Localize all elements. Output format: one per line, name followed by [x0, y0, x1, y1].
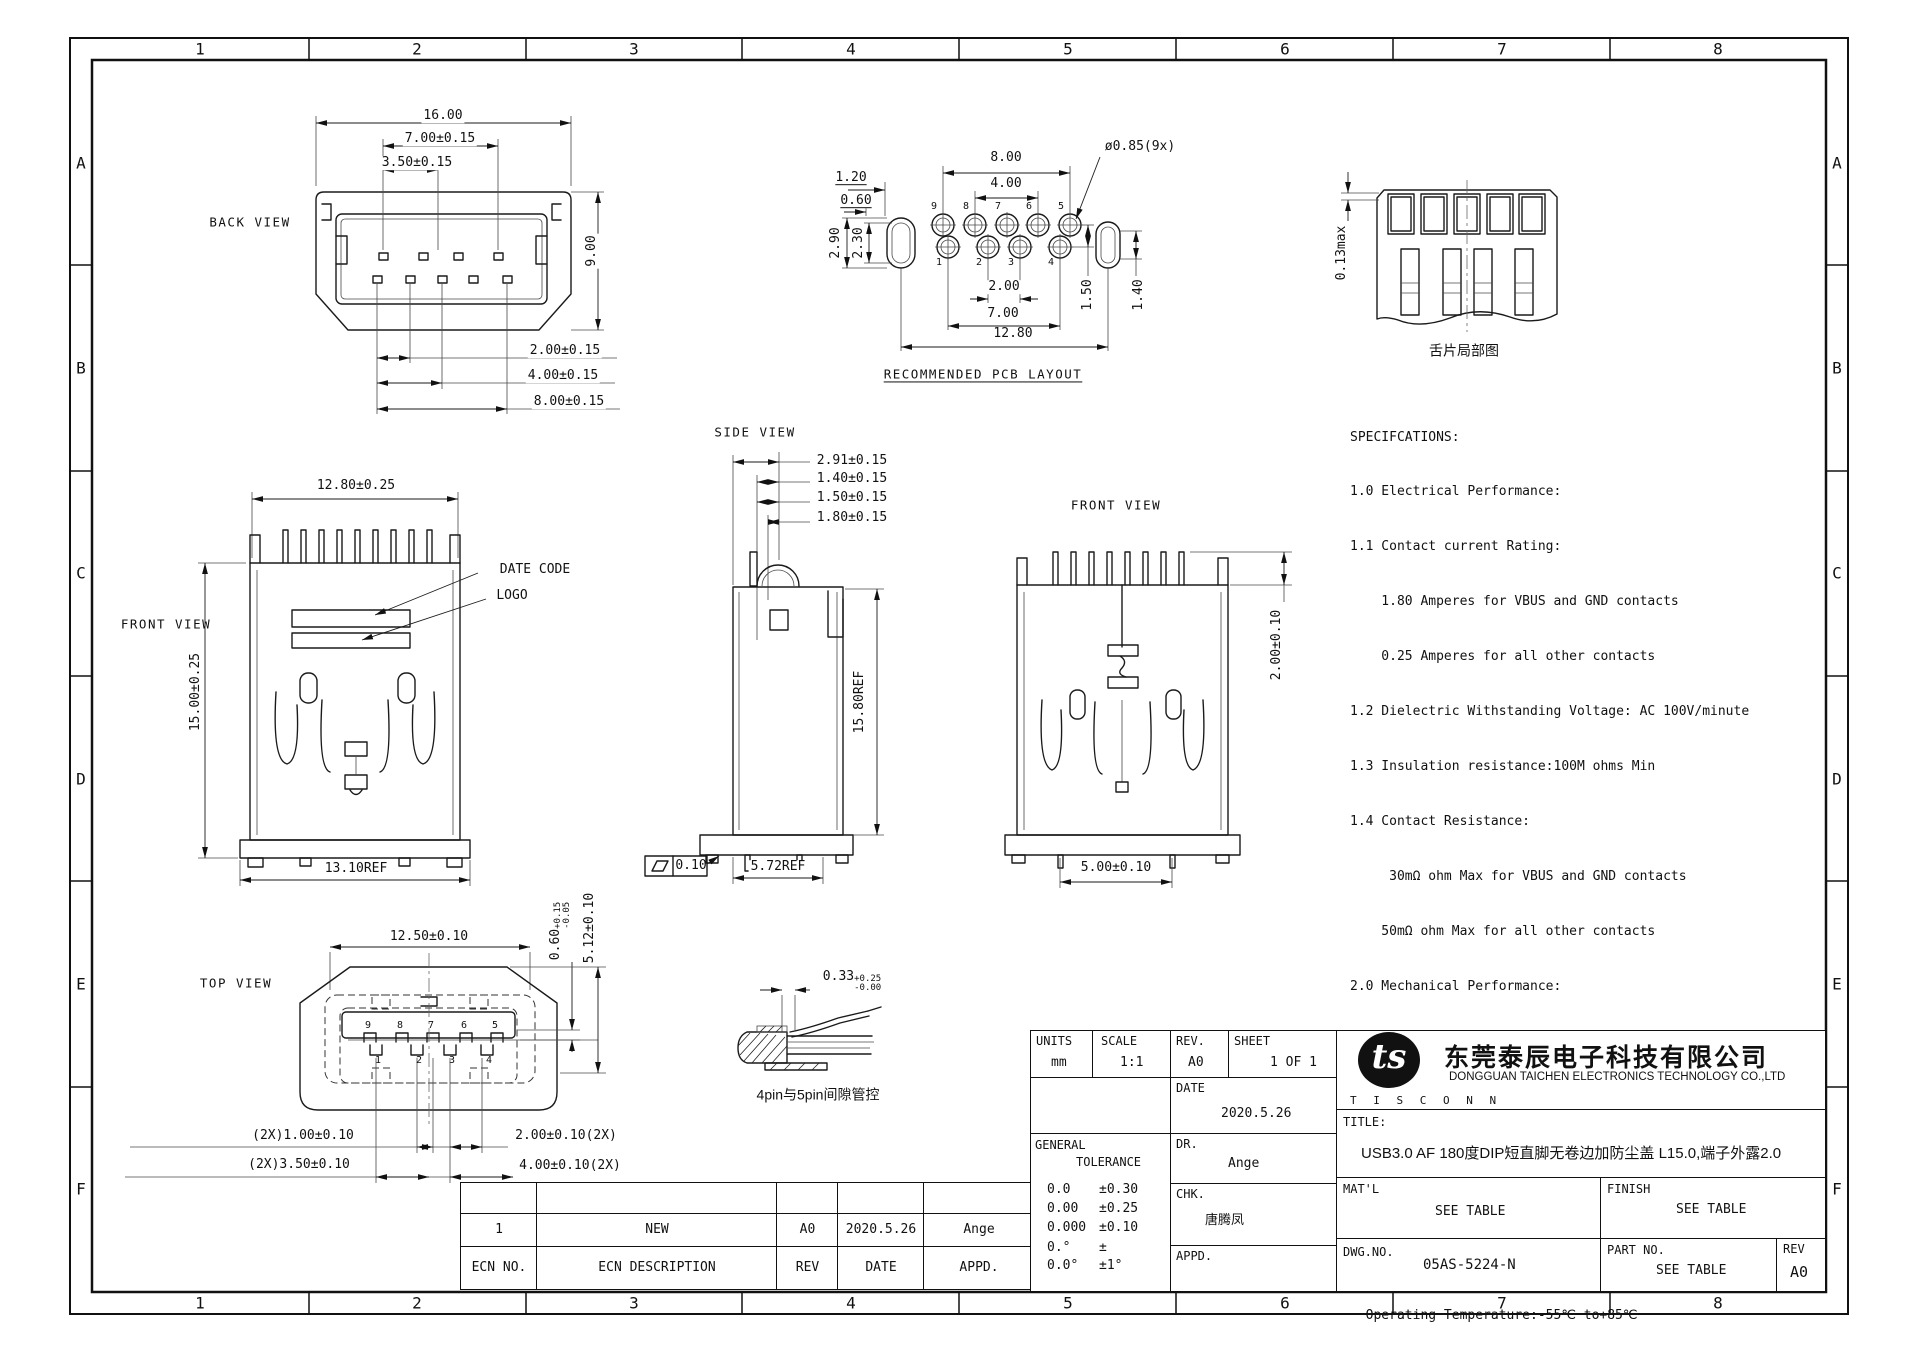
spec-line: Operating Temperature:-55℃ to+85℃	[1350, 1307, 1749, 1325]
dim: 2.00±0.15	[528, 344, 602, 358]
front-view-left-linework	[198, 492, 486, 886]
dim: 2.00±0.10	[1270, 608, 1284, 682]
zone-col: 6	[1280, 1294, 1290, 1313]
annotation: LOGO	[494, 589, 529, 603]
tb-title: TITLE: USB3.0 AF 180度DIP短直脚无卷边加防尘盖 L15.0…	[1336, 1109, 1826, 1179]
drawing-title: USB3.0 AF 180度DIP短直脚无卷边加防尘盖 L15.0,端子外露2.…	[1361, 1142, 1781, 1163]
zone-row: C	[1832, 564, 1842, 583]
front-view-right-linework	[1005, 552, 1292, 888]
tongue-detail-linework	[1341, 172, 1557, 332]
pin-number: 9	[931, 202, 937, 213]
dim: 5.00±0.10	[1079, 861, 1153, 875]
dim: 16.00	[421, 109, 464, 123]
tb-rev: REV. A0	[1170, 1030, 1230, 1079]
dim: ø0.85(9x)	[1103, 140, 1177, 154]
view-title: 舌片局部图	[1427, 344, 1501, 359]
dim: 0.33+0.25-0.00	[821, 970, 883, 992]
pin-number: 8	[397, 1021, 403, 1032]
company-name-cn: 东莞泰辰电子科技有限公司	[1444, 1038, 1768, 1074]
dim-sub: -0.05	[563, 902, 572, 929]
view-title: 4pin与5pin间隙管控	[755, 1088, 882, 1103]
zone-col: 4	[846, 40, 856, 59]
ecn-header-rev: REV	[776, 1246, 839, 1290]
tb-matl: MAT'L SEE TABLE	[1336, 1177, 1602, 1240]
specs-title: SPECIFCATIONS:	[1350, 429, 1749, 447]
pin-number: 5	[1058, 202, 1064, 213]
spec-line: 1.4 Contact Resistance:	[1350, 813, 1749, 831]
ecn-empty-cell	[536, 1182, 778, 1214]
spec-line: 1.1 Contact current Rating:	[1350, 538, 1749, 556]
pin-number: 2	[416, 1056, 422, 1067]
zone-row: B	[1832, 359, 1842, 378]
dim: 15.00±0.25	[189, 651, 203, 733]
dim: 8.00±0.15	[532, 395, 606, 409]
dim-main: 0.60	[548, 929, 563, 960]
dim: 9.00	[585, 233, 599, 268]
dim: 5.12±0.10	[583, 891, 597, 965]
dim: 1.80±0.15	[815, 511, 889, 525]
ecn-empty-cell	[923, 1182, 1035, 1214]
zone-col: 5	[1063, 1294, 1073, 1313]
dim: 0.13max	[1335, 224, 1349, 283]
tb-projection	[1030, 1077, 1172, 1135]
ecn-row-date: 2020.5.26	[837, 1213, 925, 1248]
zone-row: A	[76, 154, 86, 173]
dim: 12.50±0.10	[388, 930, 470, 944]
dim: 4.00±0.10(2X)	[517, 1159, 623, 1173]
drawing-sheet: 1 2 3 4 5 6 7 8 1 2 3 4 5 6 7 8 A B C D …	[0, 0, 1920, 1356]
zone-row: B	[76, 359, 86, 378]
tb-appd: APPD.	[1170, 1245, 1338, 1292]
ecn-empty-cell	[837, 1182, 925, 1214]
tb-rev2: REV A0	[1776, 1238, 1826, 1292]
spec-line: 1.3 Insulation resistance:100M ohms Min	[1350, 758, 1749, 776]
pin-number: 4	[1048, 258, 1054, 269]
ecn-header-date: DATE	[837, 1246, 925, 1290]
tb-finish: FINISH SEE TABLE	[1600, 1177, 1826, 1240]
pin-number: 4	[486, 1056, 492, 1067]
pin-number: 7	[995, 202, 1001, 213]
zone-row: E	[1832, 975, 1842, 994]
dim: 5.72REF	[749, 860, 808, 874]
tb-sheet: SHEET 1 OF 1	[1228, 1030, 1338, 1079]
pin-number: 9	[365, 1021, 371, 1032]
tb-chk: CHK. 唐腾凤	[1170, 1183, 1338, 1247]
spec-line: 30mΩ ohm Max for VBUS and GND contacts	[1350, 868, 1749, 886]
dim: 0.60+0.15-0.05	[549, 900, 571, 962]
pin-number: 6	[1026, 202, 1032, 213]
dim: 1.50±0.15	[815, 491, 889, 505]
view-title: BACK VIEW	[207, 215, 292, 228]
ecn-empty-cell	[776, 1182, 839, 1214]
pin-number: 1	[375, 1056, 381, 1067]
spec-line: 1.80 Amperes for VBUS and GND contacts	[1350, 593, 1749, 611]
dim: 4.00±0.15	[526, 369, 600, 383]
brand-name: T I S C O N N	[1350, 1094, 1501, 1107]
zone-row: F	[76, 1180, 86, 1199]
pin-number: 1	[936, 258, 942, 269]
dim: 1.20	[833, 171, 868, 185]
dim: 8.00	[988, 151, 1023, 165]
tb-tolerance: GENERAL TOLERANCE 0.0 ±0.30 0.00 ±0.25 0…	[1030, 1133, 1172, 1292]
dim: 4.00	[988, 177, 1023, 191]
zone-row: C	[76, 564, 86, 583]
zone-col: 2	[412, 1294, 422, 1313]
spec-line: 0.25 Amperes for all other contacts	[1350, 648, 1749, 666]
zone-col: 2	[412, 40, 422, 59]
pin-number: 5	[492, 1021, 498, 1032]
spec-line: 2.0 Mechanical Performance:	[1350, 978, 1749, 996]
tb-dr: DR. Ange	[1170, 1133, 1338, 1185]
pin-number: 7	[428, 1021, 434, 1032]
view-title: FRONT VIEW	[1069, 498, 1163, 511]
ecn-row-appd: Ange	[923, 1213, 1035, 1248]
ecn-row-no: 1	[460, 1213, 538, 1248]
zone-col: 3	[629, 1294, 639, 1313]
dim: 12.80±0.25	[315, 479, 397, 493]
zone-col: 1	[195, 40, 205, 59]
gap-detail-linework	[738, 990, 881, 1070]
pin-number: 6	[461, 1021, 467, 1032]
dim: 7.00±0.15	[403, 132, 477, 146]
ecn-empty-cell	[460, 1182, 538, 1214]
dim: 1.40±0.15	[815, 472, 889, 486]
tb-units: UNITS mm	[1030, 1030, 1094, 1079]
ecn-header-appd: APPD.	[923, 1246, 1035, 1290]
spec-line: 50mΩ ohm Max for all other contacts	[1350, 923, 1749, 941]
pin-number: 2	[976, 258, 982, 269]
company-name-en: DONGGUAN TAICHEN ELECTRONICS TECHNOLOGY …	[1449, 1071, 1785, 1083]
zone-col: 6	[1280, 40, 1290, 59]
view-title: FRONT VIEW	[119, 617, 213, 630]
annotation: DATE CODE	[498, 563, 572, 577]
dim: 1.40	[1132, 277, 1146, 312]
spec-line: 1.2 Dielectric Withstanding Voltage: AC …	[1350, 703, 1749, 721]
dim-main: 0.33	[823, 969, 854, 984]
drawing-number: 05AS-5224-N	[1423, 1257, 1516, 1273]
dim: 2.90	[829, 225, 843, 260]
pin-number: 3	[1008, 258, 1014, 269]
ecn-row-desc: NEW	[536, 1213, 778, 1248]
dim: 1.50	[1081, 277, 1095, 312]
dim: 2.30	[852, 225, 866, 260]
flatness-value: 0.10	[673, 859, 708, 873]
zone-col: 1	[195, 1294, 205, 1313]
view-title: SIDE VIEW	[712, 425, 797, 438]
tb-partno: PART NO. SEE TABLE	[1600, 1238, 1778, 1292]
tb-scale: SCALE 1:1	[1092, 1030, 1172, 1079]
zone-col: 5	[1063, 40, 1073, 59]
zone-col: 8	[1713, 40, 1723, 59]
zone-row: D	[76, 770, 86, 789]
dim: 2.00	[986, 280, 1021, 294]
dim: 13.10REF	[323, 862, 390, 876]
dim: 15.80REF	[853, 669, 867, 736]
dim: (2X)3.50±0.10	[246, 1158, 352, 1172]
pin-number: 8	[963, 202, 969, 213]
zone-col: 3	[629, 40, 639, 59]
dim: 2.00±0.10(2X)	[513, 1129, 619, 1143]
tb-dwgno: DWG.NO. 05AS-5224-N	[1336, 1238, 1602, 1292]
zone-row: F	[1832, 1180, 1842, 1199]
spec-line: 1.0 Electrical Performance:	[1350, 483, 1749, 501]
zone-row: D	[1832, 770, 1842, 789]
dim: (2X)1.00±0.10	[250, 1129, 356, 1143]
pin-number: 3	[449, 1056, 455, 1067]
view-title: TOP VIEW	[198, 976, 274, 989]
ecn-row-rev: A0	[776, 1213, 839, 1248]
tb-date: DATE 2020.5.26	[1170, 1077, 1338, 1135]
ecn-header-no: ECN NO.	[460, 1246, 538, 1290]
dim: 0.60	[838, 194, 873, 208]
dim: 3.50±0.15	[380, 156, 454, 170]
dim: 2.91±0.15	[815, 454, 889, 468]
zone-row: E	[76, 975, 86, 994]
zone-col: 7	[1497, 40, 1507, 59]
dim: 7.00	[985, 307, 1020, 321]
tisconn-logo-icon: ts	[1358, 1032, 1420, 1088]
ecn-header-desc: ECN DESCRIPTION	[536, 1246, 778, 1290]
zone-row: A	[1832, 154, 1842, 173]
zone-col: 4	[846, 1294, 856, 1313]
dim-sub: -0.00	[854, 984, 881, 993]
view-title: RECOMMENDED PCB LAYOUT	[882, 367, 1085, 380]
dim: 12.80	[991, 327, 1034, 341]
